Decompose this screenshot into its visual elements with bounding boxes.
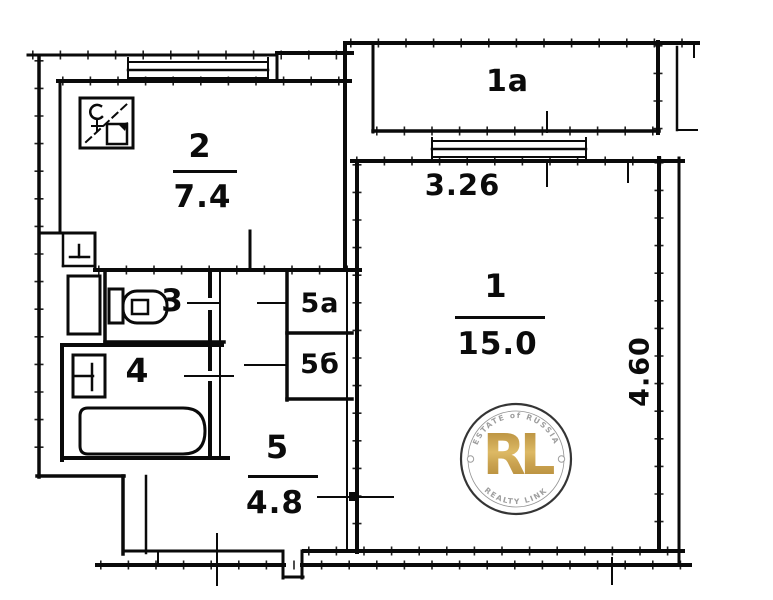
room-2-fraction-line <box>173 170 237 173</box>
watermark-monogram: RL <box>483 423 555 488</box>
walls <box>28 42 698 585</box>
kitchen-sink-icon <box>70 245 89 257</box>
bathtub-icon <box>80 408 205 454</box>
room-1-fraction-line <box>455 316 545 319</box>
room-1-depth-dimension: 4.60 <box>627 332 654 412</box>
watermark-left-dot <box>467 456 473 462</box>
closet-5b-number: 5б <box>294 351 346 378</box>
room-4-number: 4 <box>115 354 160 387</box>
balcony-number: 1а <box>470 67 545 97</box>
closet-5a-number: 5а <box>294 290 346 317</box>
floor-plan-walls <box>0 0 773 600</box>
room-2-area: 7.4 <box>165 182 240 213</box>
room-5-area: 4.8 <box>240 488 310 519</box>
floor-plan: 2 7.4 1а 3.26 1 15.0 4.60 3 4 5а 5б 5 4.… <box>0 0 773 600</box>
room-1-width-dimension: 3.26 <box>420 171 505 200</box>
room-3-number: 3 <box>150 286 195 317</box>
watermark: ESTATE of RUSSIA RL REALTY LINK <box>454 397 578 521</box>
room-1-number: 1 <box>466 270 526 302</box>
watermark-right-dot <box>558 456 564 462</box>
room-5-number: 5 <box>255 431 300 463</box>
room-1-area: 15.0 <box>450 329 545 360</box>
stove-vent-icon <box>80 98 133 148</box>
bathroom-sink-icon <box>73 364 93 390</box>
duct-shaft <box>68 276 100 334</box>
room-2-number: 2 <box>170 130 230 162</box>
room-5-fraction-line <box>248 475 318 478</box>
